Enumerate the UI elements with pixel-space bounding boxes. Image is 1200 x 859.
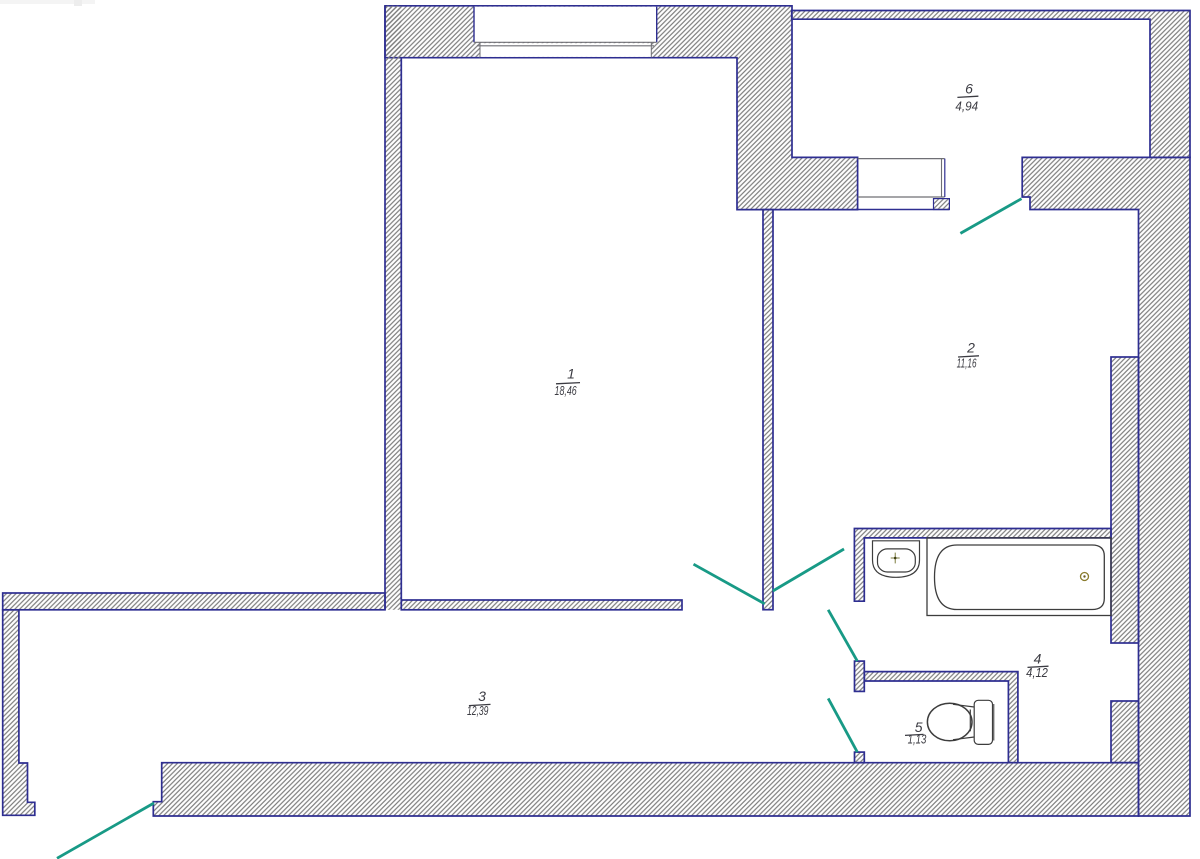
svg-text:12,39: 12,39: [467, 704, 488, 718]
svg-text:1,13: 1,13: [908, 733, 927, 747]
svg-text:11,16: 11,16: [957, 357, 978, 371]
svg-text:4,94: 4,94: [955, 99, 978, 114]
svg-text:4: 4: [1034, 651, 1042, 667]
svg-text:6: 6: [965, 80, 973, 96]
svg-text:2: 2: [966, 340, 975, 356]
svg-text:18,46: 18,46: [555, 384, 578, 398]
svg-text:3: 3: [478, 688, 486, 704]
svg-text:1: 1: [567, 365, 575, 381]
svg-text:4,12: 4,12: [1026, 665, 1048, 680]
